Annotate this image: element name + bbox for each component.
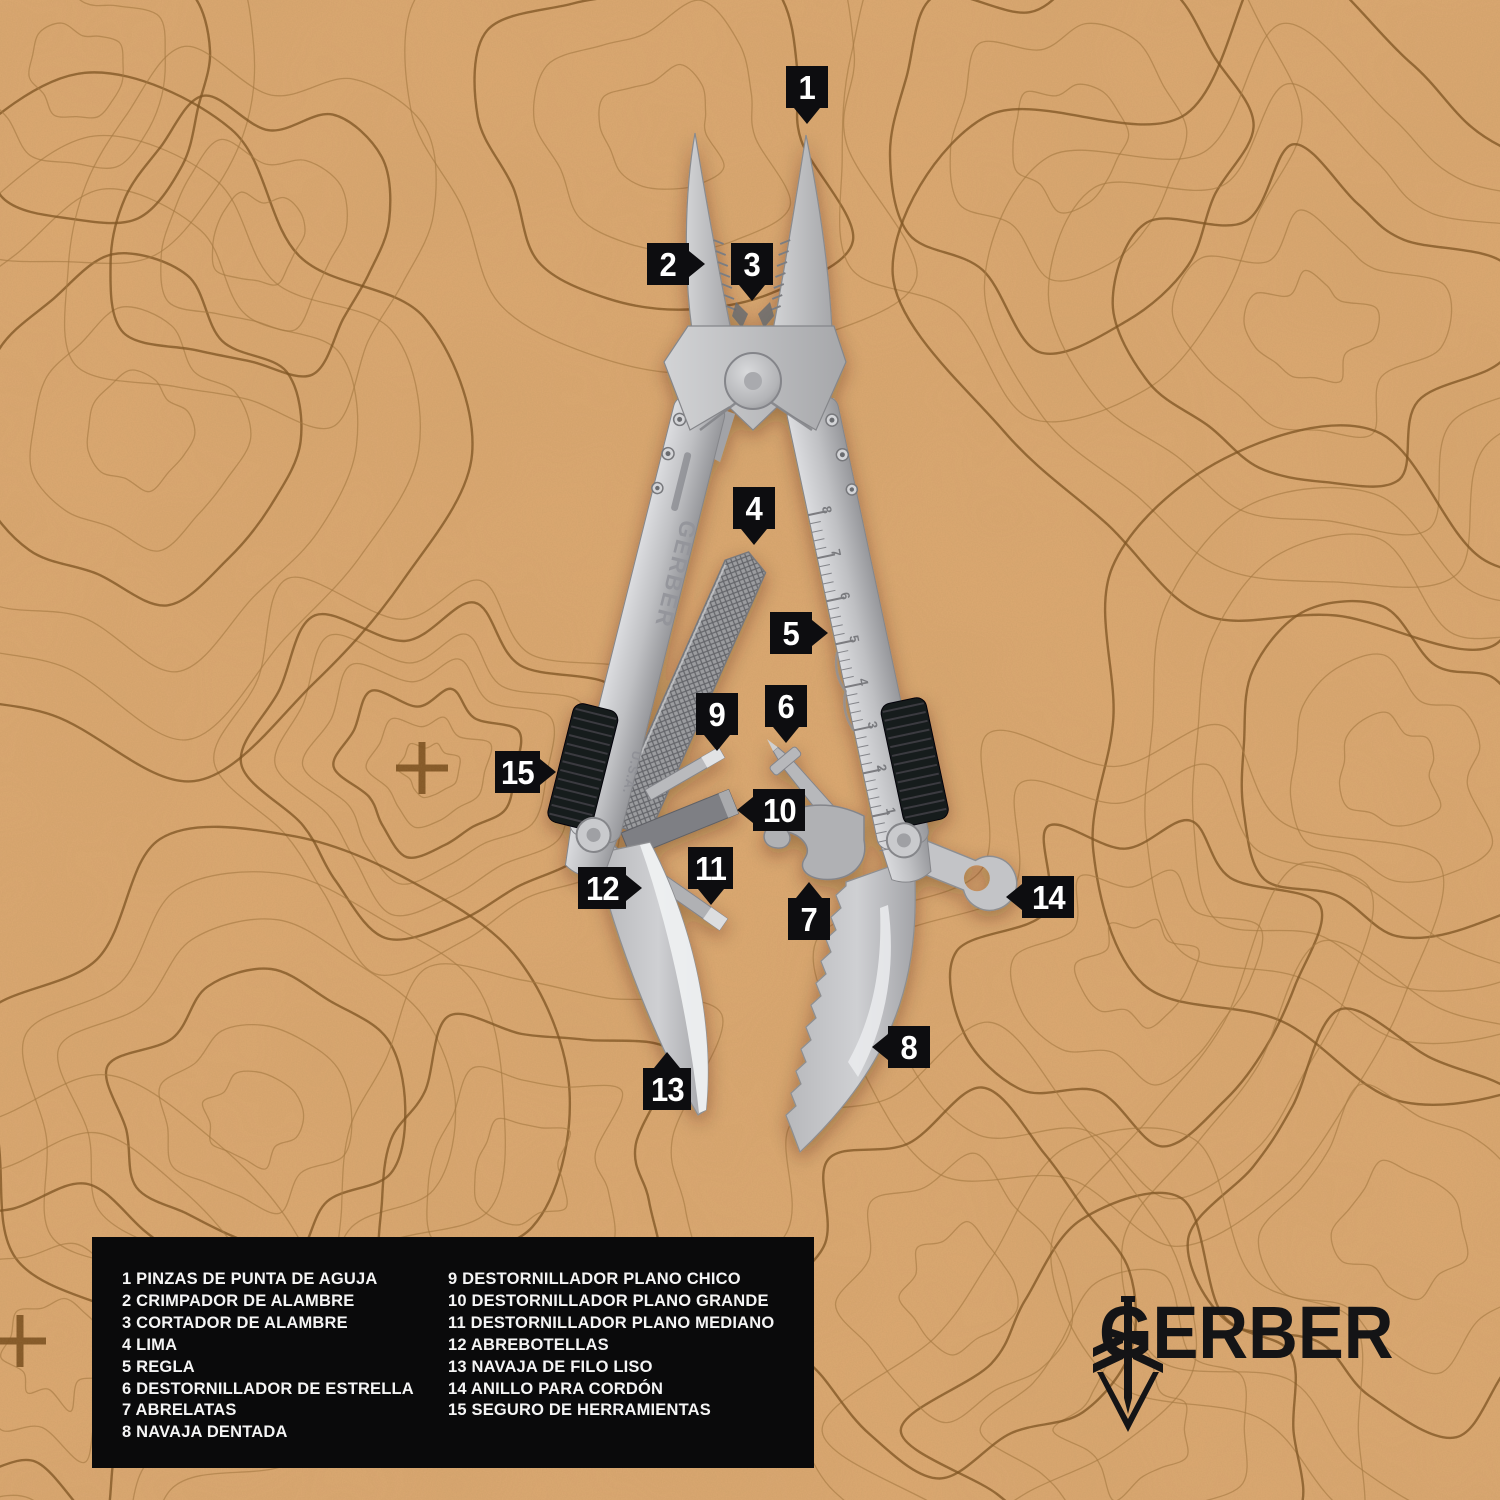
callout-pointer-down — [794, 108, 820, 124]
callout-number: 9 — [709, 698, 725, 731]
callout-15: 15 — [495, 751, 540, 793]
legend-item-12: 12 ABREBOTELLAS — [448, 1334, 774, 1356]
callout-pointer-left — [872, 1034, 888, 1060]
legend-item-1: 1 PINZAS DE PUNTA DE AGUJA — [122, 1268, 414, 1290]
callout-pointer-left — [1006, 884, 1022, 910]
callout-number: 8 — [901, 1031, 917, 1064]
infographic-canvas: GERBER U.S.A. 87654321 — [0, 0, 1500, 1500]
callout-number: 2 — [660, 248, 676, 281]
legend-item-11: 11 DESTORNILLADOR PLANO MEDIANO — [448, 1312, 774, 1334]
callout-13: 13 — [643, 1068, 691, 1110]
callout-number: 1 — [799, 71, 815, 104]
pivot-head — [664, 326, 846, 430]
legend-item-13: 13 NAVAJA DE FILO LISO — [448, 1356, 774, 1378]
legend-item-4: 4 LIMA — [122, 1334, 414, 1356]
wire-cutter-notch — [732, 302, 748, 328]
callout-pointer-right — [540, 759, 556, 785]
legend-item-5: 5 REGLA — [122, 1356, 414, 1378]
callout-number: 5 — [783, 617, 799, 650]
wire-cutter-notch — [758, 302, 774, 328]
callout-number: 12 — [586, 872, 619, 905]
legend-column-2: 9 DESTORNILLADOR PLANO CHICO10 DESTORNIL… — [448, 1268, 774, 1421]
callout-14: 14 — [1022, 876, 1074, 918]
legend-item-14: 14 ANILLO PARA CORDÓN — [448, 1378, 774, 1400]
legend-item-7: 7 ABRELATAS — [122, 1399, 414, 1421]
callout-9: 9 — [696, 693, 738, 735]
callout-8: 8 — [888, 1026, 930, 1068]
callout-number: 14 — [1032, 881, 1065, 914]
callout-pointer-left — [737, 797, 753, 823]
callout-pointer-right — [626, 875, 642, 901]
brand-lockup: GERBER — [1093, 1296, 1416, 1370]
callout-pointer-down — [704, 735, 730, 751]
callout-pointer-down — [739, 285, 765, 301]
legend-item-10: 10 DESTORNILLADOR PLANO GRANDE — [448, 1290, 774, 1312]
legend-item-3: 3 CORTADOR DE ALAMBRE — [122, 1312, 414, 1334]
callout-number: 10 — [763, 794, 796, 827]
legend-column-1: 1 PINZAS DE PUNTA DE AGUJA2 CRIMPADOR DE… — [122, 1268, 414, 1443]
callout-pointer-down — [741, 529, 767, 545]
legend-panel: 1 PINZAS DE PUNTA DE AGUJA2 CRIMPADOR DE… — [92, 1237, 814, 1468]
callout-6: 6 — [765, 685, 807, 727]
callout-number: 6 — [778, 690, 794, 723]
callout-number: 11 — [695, 852, 726, 885]
callout-11: 11 — [688, 847, 733, 889]
callout-10: 10 — [753, 789, 805, 831]
legend-item-9: 9 DESTORNILLADOR PLANO CHICO — [448, 1268, 774, 1290]
legend-item-8: 8 NAVAJA DENTADA — [122, 1421, 414, 1443]
right-jaw — [773, 135, 832, 330]
legend-item-2: 2 CRIMPADOR DE ALAMBRE — [122, 1290, 414, 1312]
callout-number: 15 — [501, 756, 534, 789]
callout-pointer-right — [812, 620, 828, 646]
callout-7: 7 — [788, 898, 830, 940]
callout-pointer-down — [773, 727, 799, 743]
callout-1: 1 — [786, 66, 828, 108]
callout-2: 2 — [647, 243, 689, 285]
callout-number: 4 — [746, 492, 762, 525]
callout-number: 7 — [801, 903, 817, 936]
callout-number: 13 — [651, 1073, 684, 1106]
callout-pointer-up — [654, 1052, 680, 1068]
callout-pointer-up — [796, 882, 822, 898]
left-jaw — [686, 133, 731, 330]
callout-pointer-right — [689, 251, 705, 277]
callout-12: 12 — [578, 867, 626, 909]
legend-item-15: 15 SEGURO DE HERRAMIENTAS — [448, 1399, 774, 1421]
legend-item-6: 6 DESTORNILLADOR DE ESTRELLA — [122, 1378, 414, 1400]
callout-5: 5 — [770, 612, 812, 654]
callout-4: 4 — [733, 487, 775, 529]
callout-3: 3 — [731, 243, 773, 285]
callout-number: 3 — [744, 248, 760, 281]
callout-pointer-down — [698, 889, 724, 905]
brand-wordmark: GERBER — [1099, 1296, 1393, 1370]
